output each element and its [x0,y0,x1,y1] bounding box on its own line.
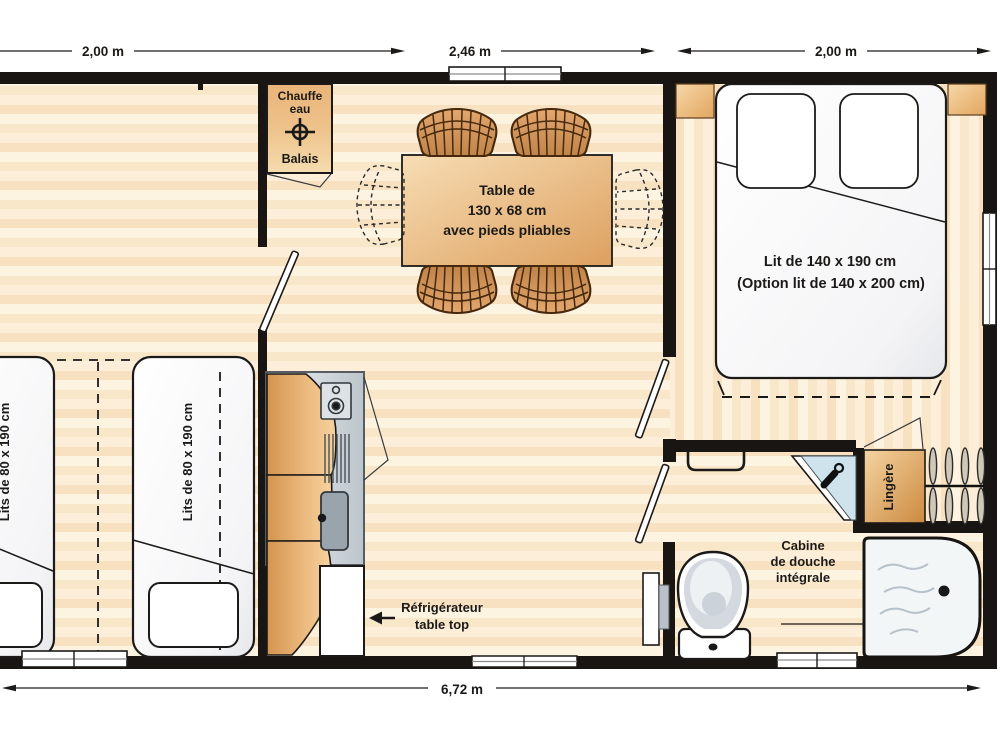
svg-text:Cabine: Cabine [781,538,824,553]
svg-text:Lit de 140 x 190 cm: Lit de 140 x 190 cm [764,254,896,270]
svg-text:table top: table top [415,617,469,632]
svg-text:eau: eau [290,102,311,116]
svg-text:Table de: Table de [479,182,535,198]
svg-text:Lingère: Lingère [881,464,896,511]
svg-text:2,46 m: 2,46 m [449,44,491,59]
svg-text:(Option lit de 140 x 200 cm): (Option lit de 140 x 200 cm) [737,276,925,292]
svg-text:6,72 m: 6,72 m [441,682,483,697]
svg-text:intégrale: intégrale [776,570,830,585]
svg-text:Chauffe: Chauffe [278,89,323,103]
svg-text:Balais: Balais [282,152,319,166]
svg-text:Lits de 80 x 190 cm: Lits de 80 x 190 cm [180,403,195,522]
svg-text:2,00 m: 2,00 m [815,44,857,59]
svg-text:Lits de 80 x 190 cm: Lits de 80 x 190 cm [0,403,12,522]
svg-text:Réfrigérateur: Réfrigérateur [401,600,483,615]
svg-text:avec pieds pliables: avec pieds pliables [443,222,571,238]
svg-text:de douche: de douche [770,554,835,569]
svg-text:2,00 m: 2,00 m [82,44,124,59]
svg-text:130 x 68 cm: 130 x 68 cm [468,202,547,218]
